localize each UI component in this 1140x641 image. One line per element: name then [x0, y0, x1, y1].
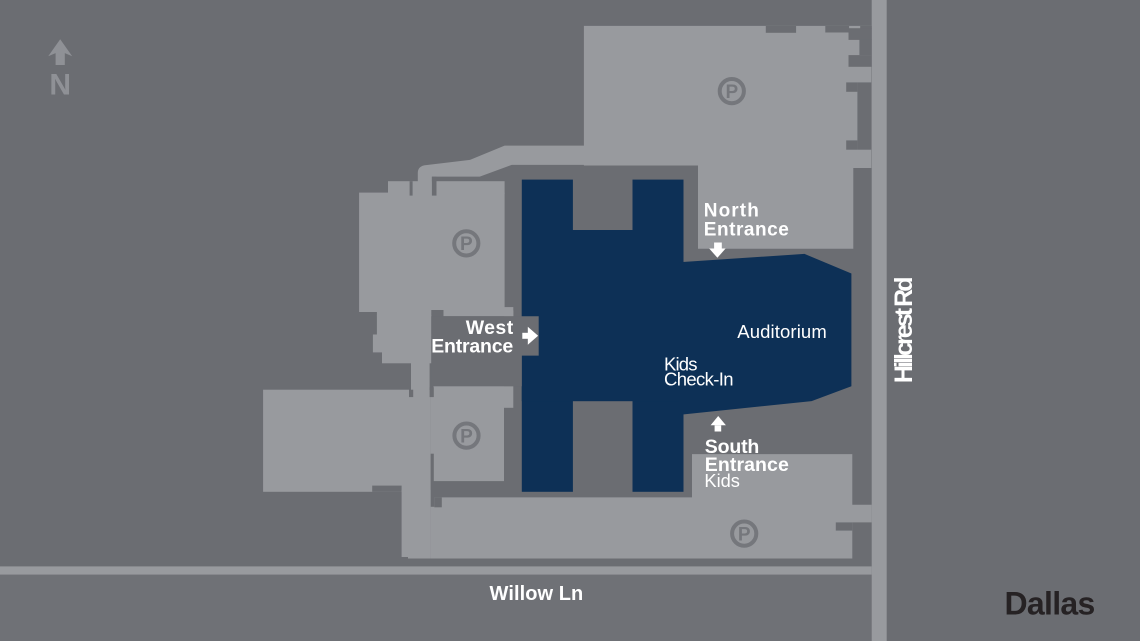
svg-text:P: P	[738, 524, 751, 545]
svg-text:Willow Ln: Willow Ln	[490, 583, 584, 605]
svg-text:Entrance: Entrance	[704, 219, 789, 240]
svg-text:Auditorium: Auditorium	[737, 321, 827, 342]
svg-text:P: P	[725, 82, 738, 103]
svg-text:Entrance: Entrance	[431, 336, 513, 358]
svg-text:P: P	[460, 426, 473, 447]
svg-text:Hillcrest Rd: Hillcrest Rd	[890, 276, 918, 383]
svg-text:Check-In: Check-In	[664, 368, 734, 389]
svg-text:Dallas: Dallas	[1005, 586, 1096, 622]
svg-text:Kids: Kids	[704, 470, 740, 491]
svg-text:P: P	[460, 234, 473, 255]
svg-text:North: North	[704, 200, 759, 221]
svg-text:N: N	[49, 68, 71, 101]
